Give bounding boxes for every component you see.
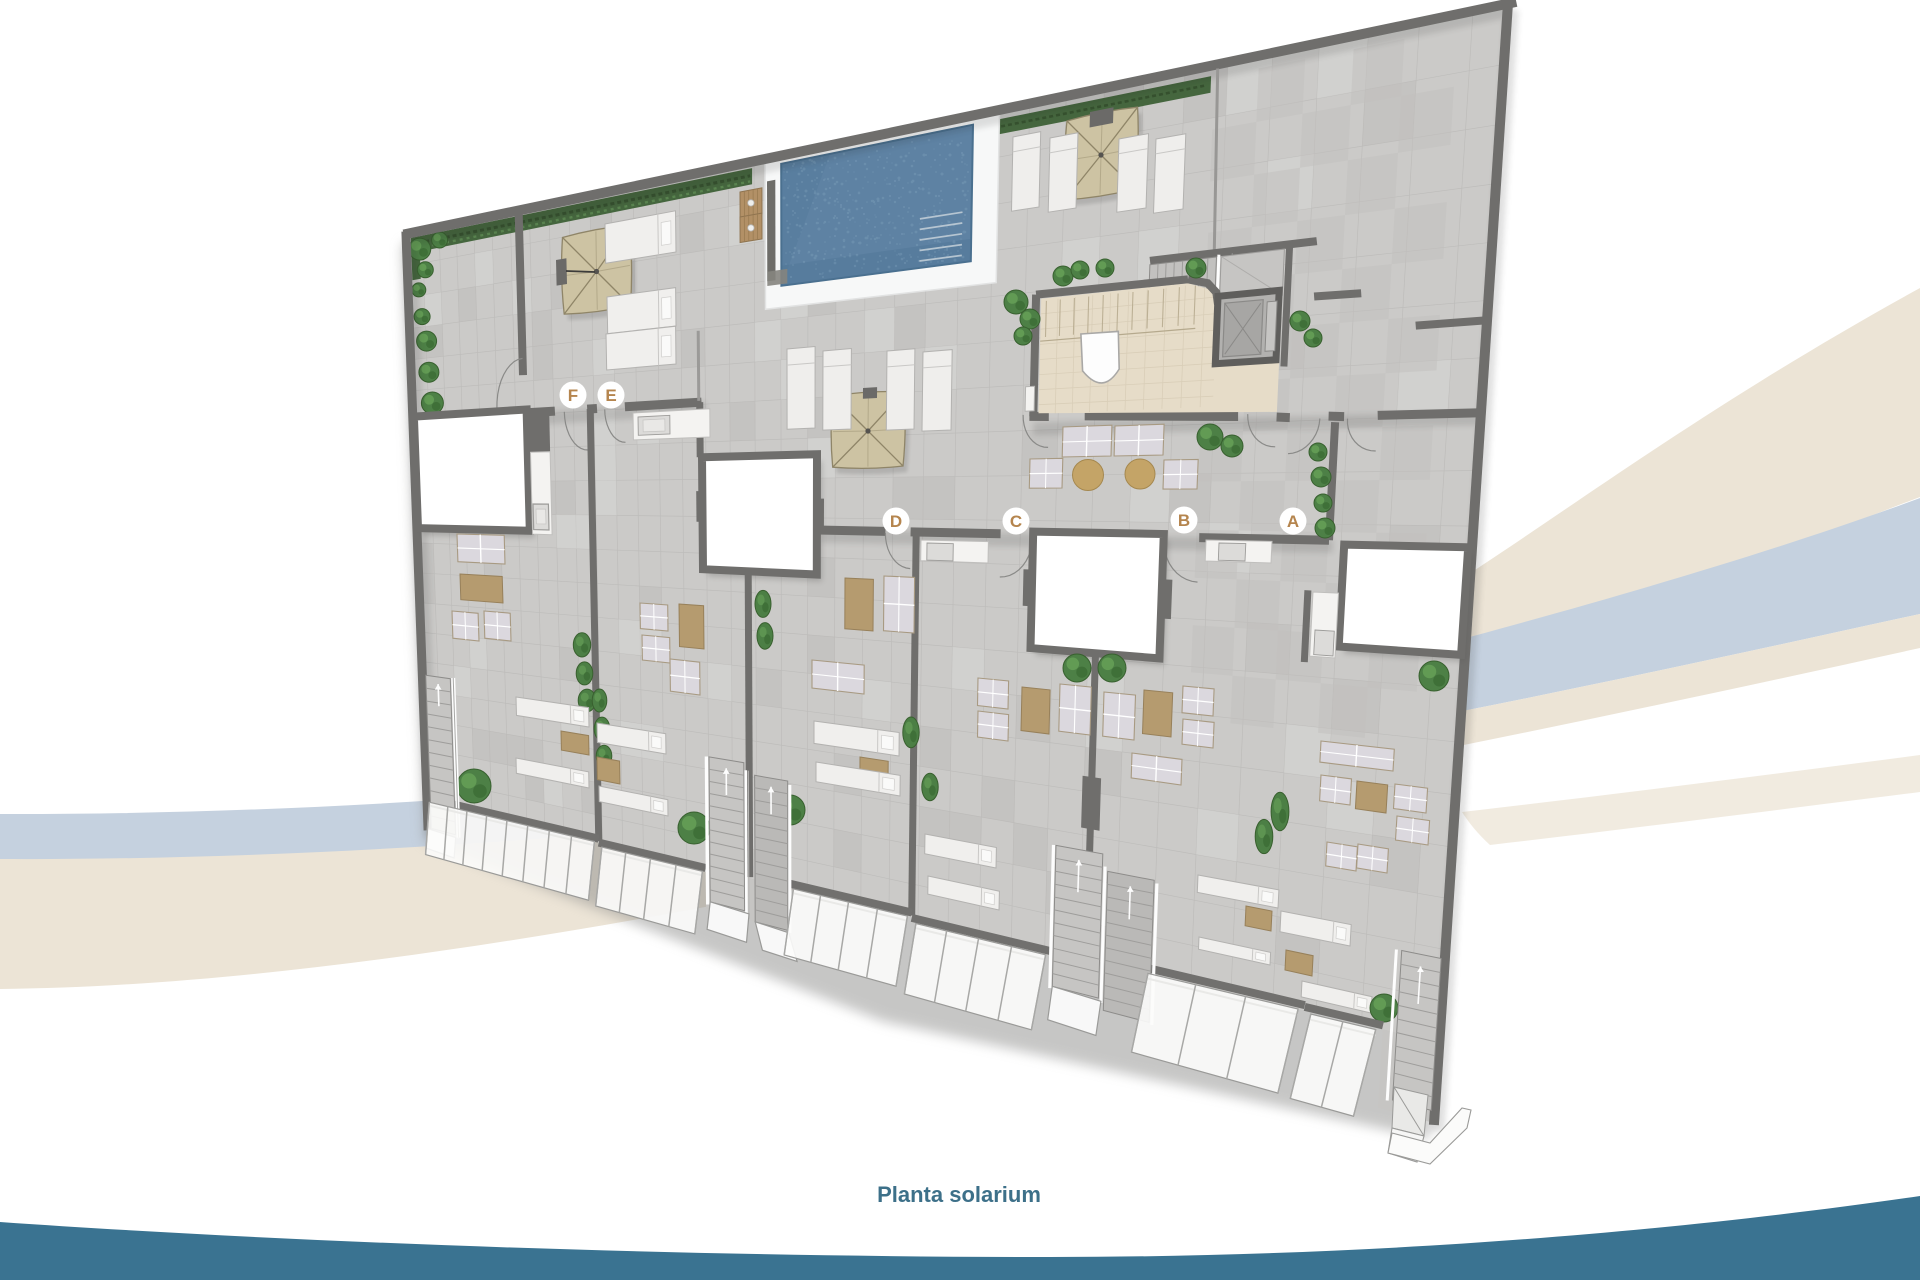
svg-text:F: F bbox=[568, 386, 578, 405]
svg-text:Planta solarium: Planta solarium bbox=[877, 1182, 1041, 1207]
svg-text:A: A bbox=[1287, 512, 1299, 531]
svg-text:C: C bbox=[1010, 512, 1022, 531]
svg-text:B: B bbox=[1178, 511, 1190, 530]
svg-text:E: E bbox=[605, 386, 616, 405]
svg-text:D: D bbox=[890, 512, 902, 531]
